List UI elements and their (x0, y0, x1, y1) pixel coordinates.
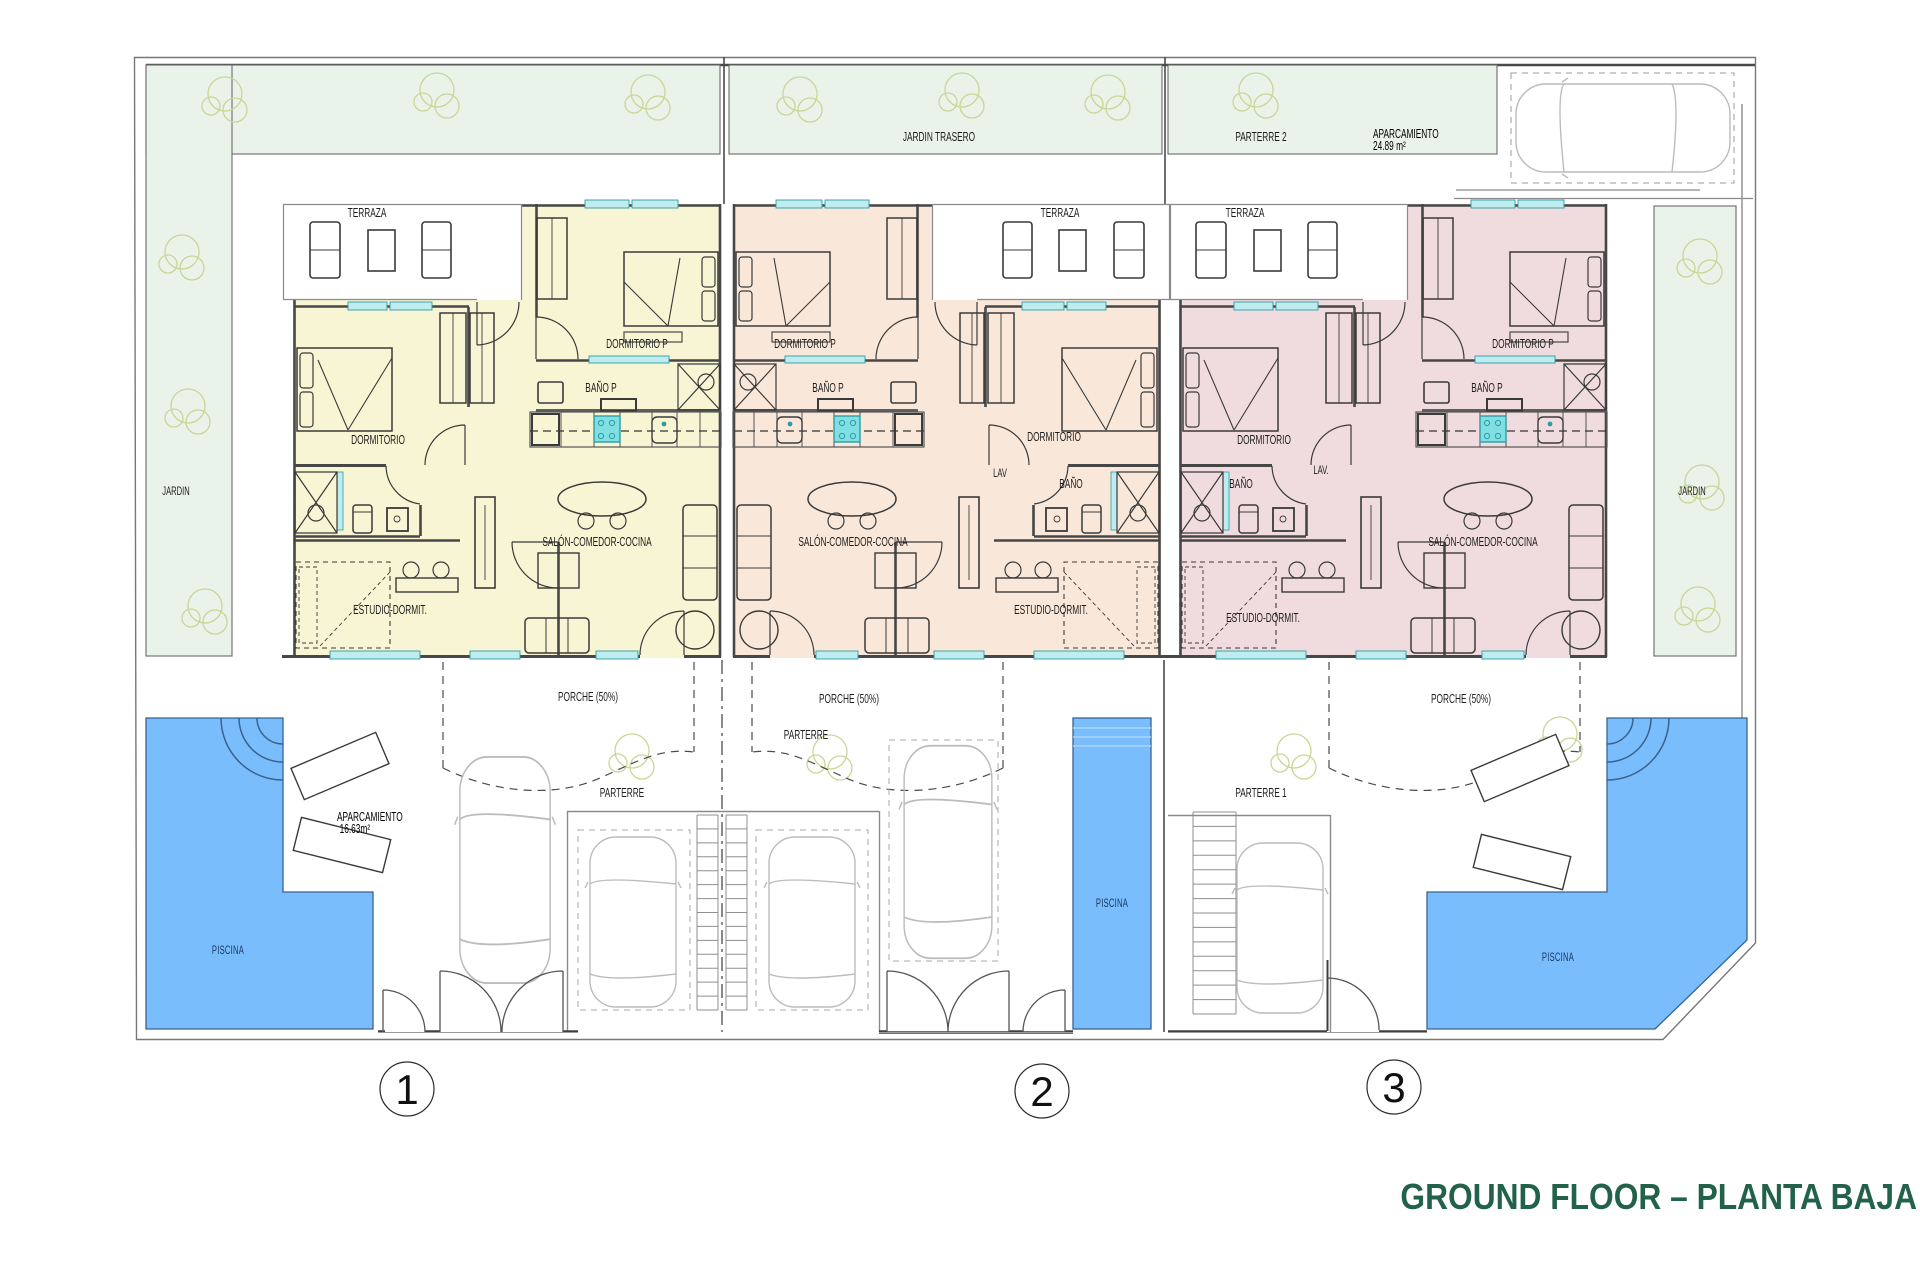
svg-text:PISCINA: PISCINA (1542, 952, 1574, 965)
svg-text:SALÓN-COMEDOR-COCINA: SALÓN-COMEDOR-COCINA (1428, 534, 1538, 549)
svg-text:SALÓN-COMEDOR-COCINA: SALÓN-COMEDOR-COCINA (542, 534, 652, 549)
svg-text:BAÑO: BAÑO (1059, 476, 1083, 491)
svg-text:JARDIN TRASERO: JARDIN TRASERO (903, 130, 975, 144)
svg-text:ESTUDIO-DORMIT.: ESTUDIO-DORMIT. (1226, 611, 1300, 625)
svg-text:DORMITORIO: DORMITORIO (351, 433, 405, 447)
svg-text:BAÑO P: BAÑO P (1471, 380, 1502, 395)
svg-text:DORMITORIO P: DORMITORIO P (774, 337, 836, 351)
svg-text:3: 3 (1382, 1064, 1405, 1111)
svg-text:ESTUDIO-DORMIT.: ESTUDIO-DORMIT. (1014, 603, 1088, 617)
svg-text:BAÑO P: BAÑO P (812, 380, 843, 395)
svg-text:ESTUDIO-DORMIT.: ESTUDIO-DORMIT. (353, 603, 427, 617)
svg-text:TERRAZA: TERRAZA (1226, 206, 1265, 220)
svg-text:BAÑO: BAÑO (1229, 476, 1253, 491)
svg-text:PARTERRE: PARTERRE (784, 728, 828, 742)
svg-text:PISCINA: PISCINA (212, 945, 244, 958)
svg-text:LAV.: LAV. (1313, 465, 1328, 478)
svg-text:PISCINA: PISCINA (1096, 898, 1128, 911)
svg-text:GROUND FLOOR – PLANTA BAJA: GROUND FLOOR – PLANTA BAJA (1400, 1177, 1917, 1218)
svg-text:LAV: LAV (993, 468, 1007, 481)
svg-text:PARTERRE: PARTERRE (600, 786, 644, 800)
svg-text:PORCHE (50%): PORCHE (50%) (558, 690, 618, 704)
svg-text:2: 2 (1030, 1068, 1053, 1115)
svg-text:DORMITORIO P: DORMITORIO P (1492, 337, 1554, 351)
svg-text:PORCHE (50%): PORCHE (50%) (819, 692, 879, 706)
svg-text:24.89 m²: 24.89 m² (1373, 139, 1406, 153)
svg-text:TERRAZA: TERRAZA (1041, 206, 1080, 220)
svg-text:DORMITORIO: DORMITORIO (1237, 433, 1291, 447)
svg-text:PARTERRE 1: PARTERRE 1 (1235, 786, 1286, 800)
svg-text:PARTERRE 2: PARTERRE 2 (1235, 130, 1286, 144)
svg-text:DORMITORIO P: DORMITORIO P (606, 337, 668, 351)
svg-text:JARDIN: JARDIN (162, 486, 189, 499)
svg-text:BAÑO P: BAÑO P (585, 380, 616, 395)
svg-text:TERRAZA: TERRAZA (348, 206, 387, 220)
svg-text:16.63m²: 16.63m² (340, 822, 371, 836)
svg-text:SALÓN-COMEDOR-COCINA: SALÓN-COMEDOR-COCINA (798, 534, 908, 549)
svg-text:1: 1 (395, 1066, 418, 1113)
svg-text:PORCHE (50%): PORCHE (50%) (1431, 692, 1491, 706)
svg-text:JARDIN: JARDIN (1678, 486, 1705, 499)
svg-text:DORMITORIO: DORMITORIO (1027, 430, 1081, 444)
